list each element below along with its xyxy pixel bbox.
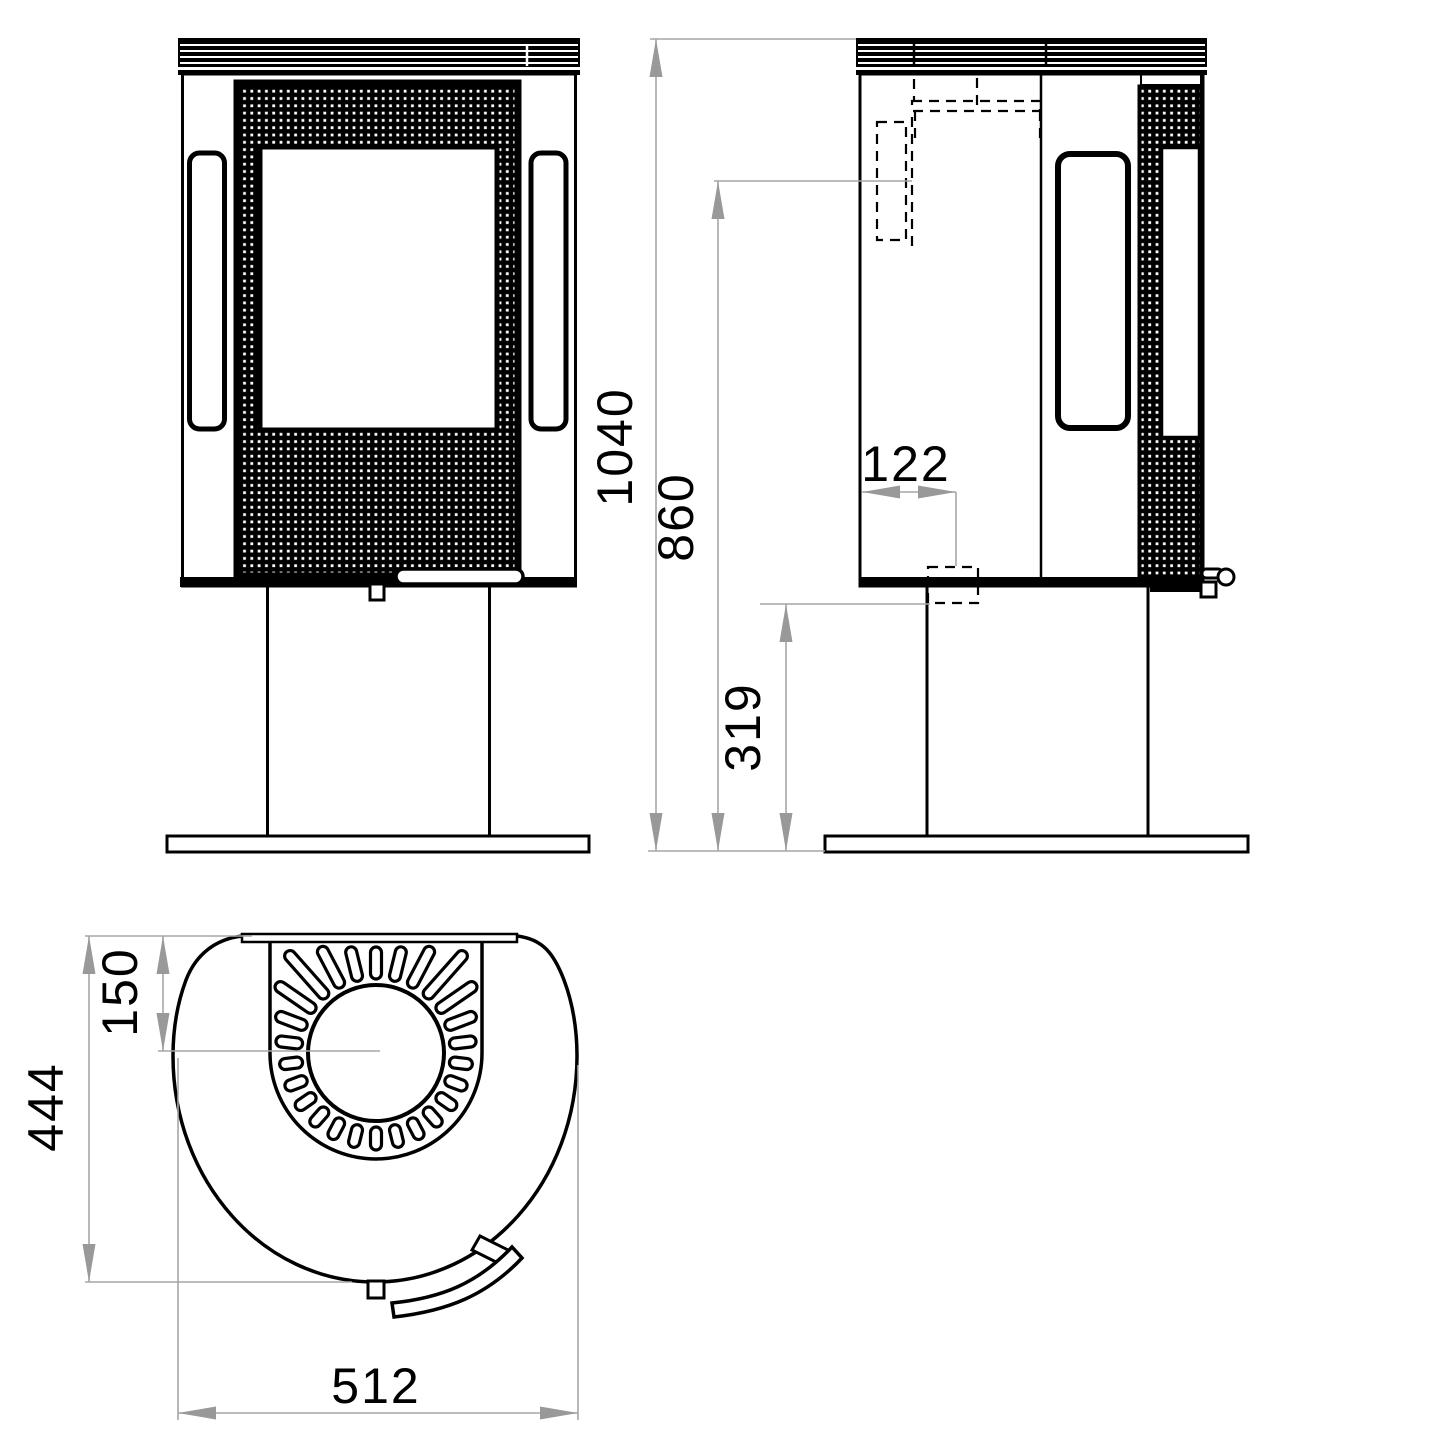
dim-depth: 444: [18, 936, 96, 1282]
grate-slot: [275, 1035, 303, 1049]
front-door-handle: [396, 569, 523, 584]
dim-lower-connection-height: 319: [715, 604, 793, 851]
drawing-svg: 1040 860 319 122 150: [0, 0, 1445, 1445]
grate-slot: [371, 947, 382, 979]
dim-label-122: 122: [861, 436, 950, 492]
grate-slot: [279, 1056, 303, 1070]
grate-slot: [449, 1035, 477, 1049]
top-flue-circle: [308, 985, 444, 1121]
front-knob: [370, 584, 384, 600]
dim-label-150: 150: [92, 947, 148, 1036]
side-base-plate: [825, 836, 1248, 852]
top-view: [173, 934, 577, 1317]
front-base-plate: [167, 836, 589, 852]
side-front-slot: [1162, 148, 1199, 437]
dim-label-1040: 1040: [587, 387, 643, 506]
front-view: [167, 38, 589, 852]
front-glass-window: [260, 147, 497, 430]
dim-label-512: 512: [331, 1358, 420, 1414]
dim-rear-flue-offset: 122: [861, 436, 956, 499]
side-handle-knob: [1218, 569, 1234, 585]
dim-label-444: 444: [18, 1062, 74, 1151]
grate-slot: [449, 1056, 473, 1070]
dim-label-860: 860: [648, 472, 704, 561]
front-left-slot: [190, 153, 225, 429]
top-knob: [368, 1281, 384, 1298]
dim-overall-height: 1040: [587, 39, 663, 851]
front-right-slot: [531, 153, 566, 429]
grate-slot: [371, 1127, 382, 1150]
dim-rear-flue-height: 860: [648, 181, 725, 851]
top-back-edge: [242, 934, 517, 942]
dim-label-319: 319: [715, 682, 771, 771]
stove-technical-drawing: 1040 860 319 122 150: [0, 0, 1445, 1445]
side-slot: [1058, 154, 1128, 428]
dim-top-outlet-center: 150: [92, 936, 170, 1051]
dim-width: 512: [178, 1358, 578, 1420]
